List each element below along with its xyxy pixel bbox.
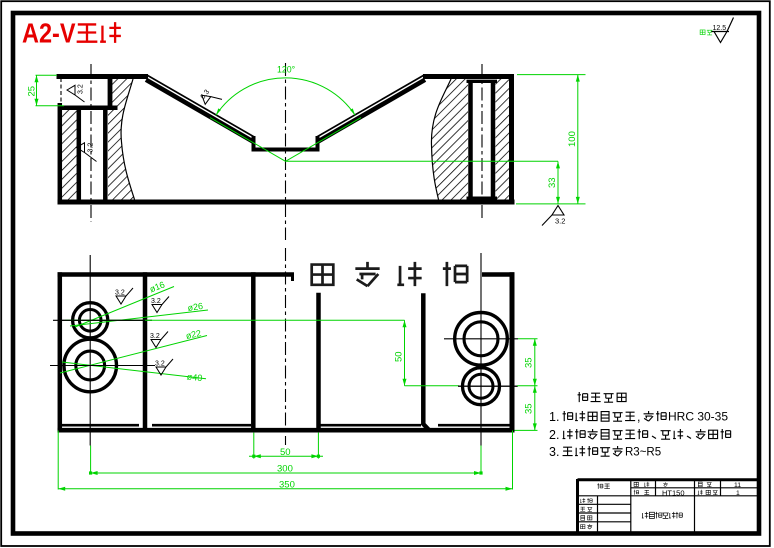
svg-text:3.2: 3.2 (115, 290, 125, 297)
svg-text:,: , (637, 410, 640, 424)
svg-text:3.2: 3.2 (88, 143, 95, 153)
svg-text:33: 33 (547, 177, 558, 188)
svg-text:R3~R5: R3~R5 (625, 447, 661, 459)
svg-text:A2-V: A2-V (22, 18, 76, 49)
svg-text:ø26: ø26 (187, 301, 204, 313)
svg-text:300: 300 (277, 464, 293, 475)
svg-text:HRC 30-35: HRC 30-35 (668, 410, 728, 424)
svg-text:50: 50 (394, 351, 405, 362)
svg-text:3.2: 3.2 (150, 333, 160, 340)
svg-text:3.2: 3.2 (78, 84, 85, 94)
svg-text:50: 50 (280, 447, 291, 458)
svg-text:25: 25 (27, 86, 38, 97)
svg-text:2.: 2. (549, 428, 559, 442)
svg-text:100: 100 (567, 131, 578, 147)
svg-text:350: 350 (279, 479, 295, 490)
svg-text:35: 35 (524, 403, 535, 414)
svg-text:1: 1 (736, 490, 740, 497)
svg-text:ø40: ø40 (186, 372, 202, 384)
svg-text:12.5: 12.5 (713, 25, 727, 32)
svg-text:HT150: HT150 (662, 488, 685, 497)
svg-text:3.2: 3.2 (155, 361, 165, 368)
svg-text:3.: 3. (549, 445, 559, 459)
svg-text:120°: 120° (277, 65, 295, 75)
svg-text:3.2: 3.2 (555, 217, 565, 226)
svg-text:1.: 1. (549, 410, 559, 424)
svg-text:35: 35 (524, 357, 535, 368)
svg-text:3.2: 3.2 (151, 298, 161, 305)
svg-text:11: 11 (734, 482, 741, 489)
